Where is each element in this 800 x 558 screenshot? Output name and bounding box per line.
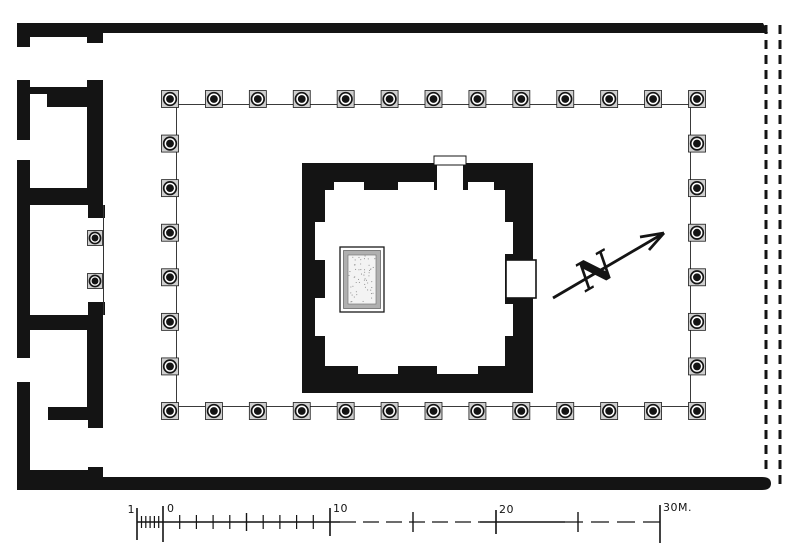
column xyxy=(205,91,222,108)
column xyxy=(249,91,266,108)
temple-plan-svg: N 1 0 10 20 30M. xyxy=(0,0,800,558)
door-room-a-b xyxy=(30,94,47,107)
column xyxy=(293,91,310,108)
column xyxy=(337,91,354,108)
north-label: N xyxy=(566,241,624,302)
column xyxy=(645,403,662,420)
column xyxy=(601,91,618,108)
column xyxy=(205,403,222,420)
column xyxy=(337,403,354,420)
column xyxy=(381,403,398,420)
cella xyxy=(302,156,536,393)
door-room-a-east xyxy=(87,43,103,80)
altar-inner xyxy=(348,255,376,304)
column xyxy=(162,403,179,420)
column xyxy=(469,403,486,420)
column xyxy=(293,403,310,420)
scale-label-1: 1 xyxy=(128,503,136,516)
column xyxy=(162,269,179,286)
scale-ticks-major xyxy=(137,505,660,543)
column xyxy=(425,91,442,108)
column xyxy=(601,403,618,420)
column xyxy=(162,313,179,330)
column xyxy=(689,403,706,420)
scale-bar: 1 0 10 20 30M. xyxy=(128,501,692,543)
column xyxy=(425,403,442,420)
restored-east-edge xyxy=(766,25,780,488)
column xyxy=(162,91,179,108)
room-c-anta-south xyxy=(88,302,105,315)
column xyxy=(689,313,706,330)
column xyxy=(557,91,574,108)
cella-door-north-step xyxy=(434,156,466,165)
column xyxy=(162,180,179,197)
column xyxy=(469,91,486,108)
scale-label-0: 0 xyxy=(167,502,175,515)
column xyxy=(162,224,179,241)
room-a xyxy=(30,37,87,87)
room-c xyxy=(30,205,88,315)
window-room-a xyxy=(17,47,30,80)
column xyxy=(645,91,662,108)
column xyxy=(557,403,574,420)
west-rooms xyxy=(17,23,105,490)
door-room-d-e xyxy=(30,407,48,420)
column xyxy=(689,224,706,241)
room-b xyxy=(30,107,87,188)
room-d xyxy=(30,330,87,407)
altar-base xyxy=(340,247,384,312)
plan-figure: N 1 0 10 20 30M. xyxy=(0,0,800,558)
column xyxy=(162,135,179,152)
column xyxy=(689,180,706,197)
scale-label-20: 20 xyxy=(499,503,514,516)
column xyxy=(689,358,706,375)
column xyxy=(689,91,706,108)
door-room-e-east xyxy=(87,428,103,467)
column xyxy=(689,135,706,152)
column xyxy=(88,274,103,289)
column xyxy=(513,91,530,108)
north-arrow: N xyxy=(553,233,664,302)
column xyxy=(513,403,530,420)
window-room-d xyxy=(17,358,30,382)
cella-door-east xyxy=(506,260,536,298)
north-wall xyxy=(17,23,768,33)
room-e xyxy=(30,420,88,470)
scale-label-30m: 30M. xyxy=(663,501,692,514)
column xyxy=(162,358,179,375)
room-c-anta-north xyxy=(88,205,105,218)
column xyxy=(249,403,266,420)
south-wall xyxy=(17,477,771,490)
column xyxy=(689,269,706,286)
column xyxy=(88,231,103,246)
scale-label-10: 10 xyxy=(333,502,348,515)
column xyxy=(381,91,398,108)
window-room-b xyxy=(17,140,30,160)
